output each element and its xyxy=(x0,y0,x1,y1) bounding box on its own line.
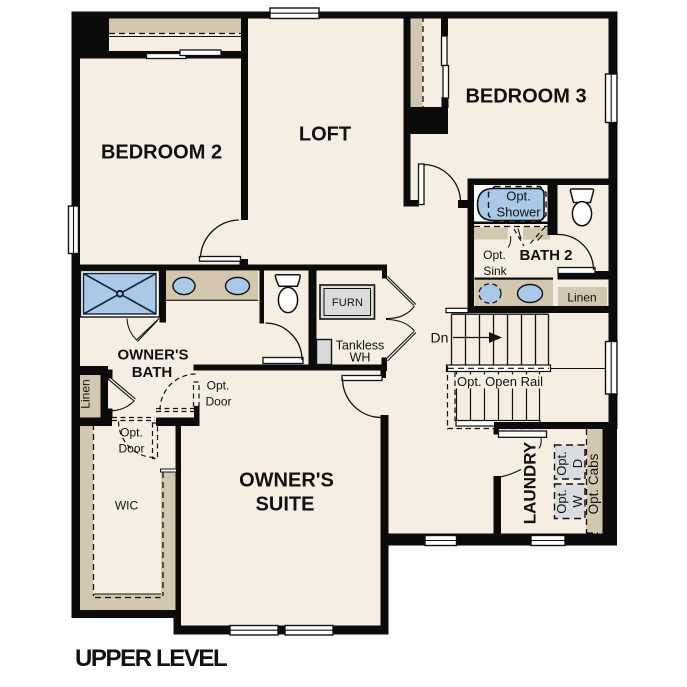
svg-text:D: D xyxy=(570,459,585,468)
svg-text:Opt.: Opt. xyxy=(554,489,569,514)
svg-text:WIC: WIC xyxy=(115,499,139,513)
svg-text:BEDROOM 2: BEDROOM 2 xyxy=(101,142,222,164)
svg-text:WH: WH xyxy=(350,351,371,365)
svg-text:Sink: Sink xyxy=(483,264,507,278)
svg-text:Linen: Linen xyxy=(567,291,596,305)
svg-text:LOFT: LOFT xyxy=(299,124,351,146)
svg-text:BATH: BATH xyxy=(132,364,173,381)
svg-text:Dn: Dn xyxy=(431,330,449,346)
svg-text:Opt.: Opt. xyxy=(483,248,506,262)
svg-text:SUITE: SUITE xyxy=(256,494,315,516)
svg-text:OWNER'S: OWNER'S xyxy=(117,347,188,364)
svg-text:Opt.: Opt. xyxy=(207,379,230,393)
svg-text:OWNER'S: OWNER'S xyxy=(239,470,334,492)
svg-text:Opt.: Opt. xyxy=(554,451,569,476)
svg-text:W: W xyxy=(570,495,585,508)
svg-text:UPPER LEVEL: UPPER LEVEL xyxy=(75,645,227,672)
svg-text:Linen: Linen xyxy=(79,379,93,408)
svg-text:FURN: FURN xyxy=(332,297,363,309)
svg-text:Opt. Cabs: Opt. Cabs xyxy=(586,453,601,514)
svg-text:Door: Door xyxy=(205,395,231,409)
svg-text:Opt.: Opt. xyxy=(120,426,143,440)
svg-text:LAUNDRY: LAUNDRY xyxy=(521,441,540,524)
svg-text:Door: Door xyxy=(118,442,144,456)
svg-text:Opt. Open Rail: Opt. Open Rail xyxy=(457,374,543,389)
svg-text:BATH 2: BATH 2 xyxy=(519,247,572,264)
svg-text:Shower: Shower xyxy=(496,205,541,220)
svg-text:BEDROOM 3: BEDROOM 3 xyxy=(465,86,586,108)
svg-text:Opt.: Opt. xyxy=(506,189,531,204)
